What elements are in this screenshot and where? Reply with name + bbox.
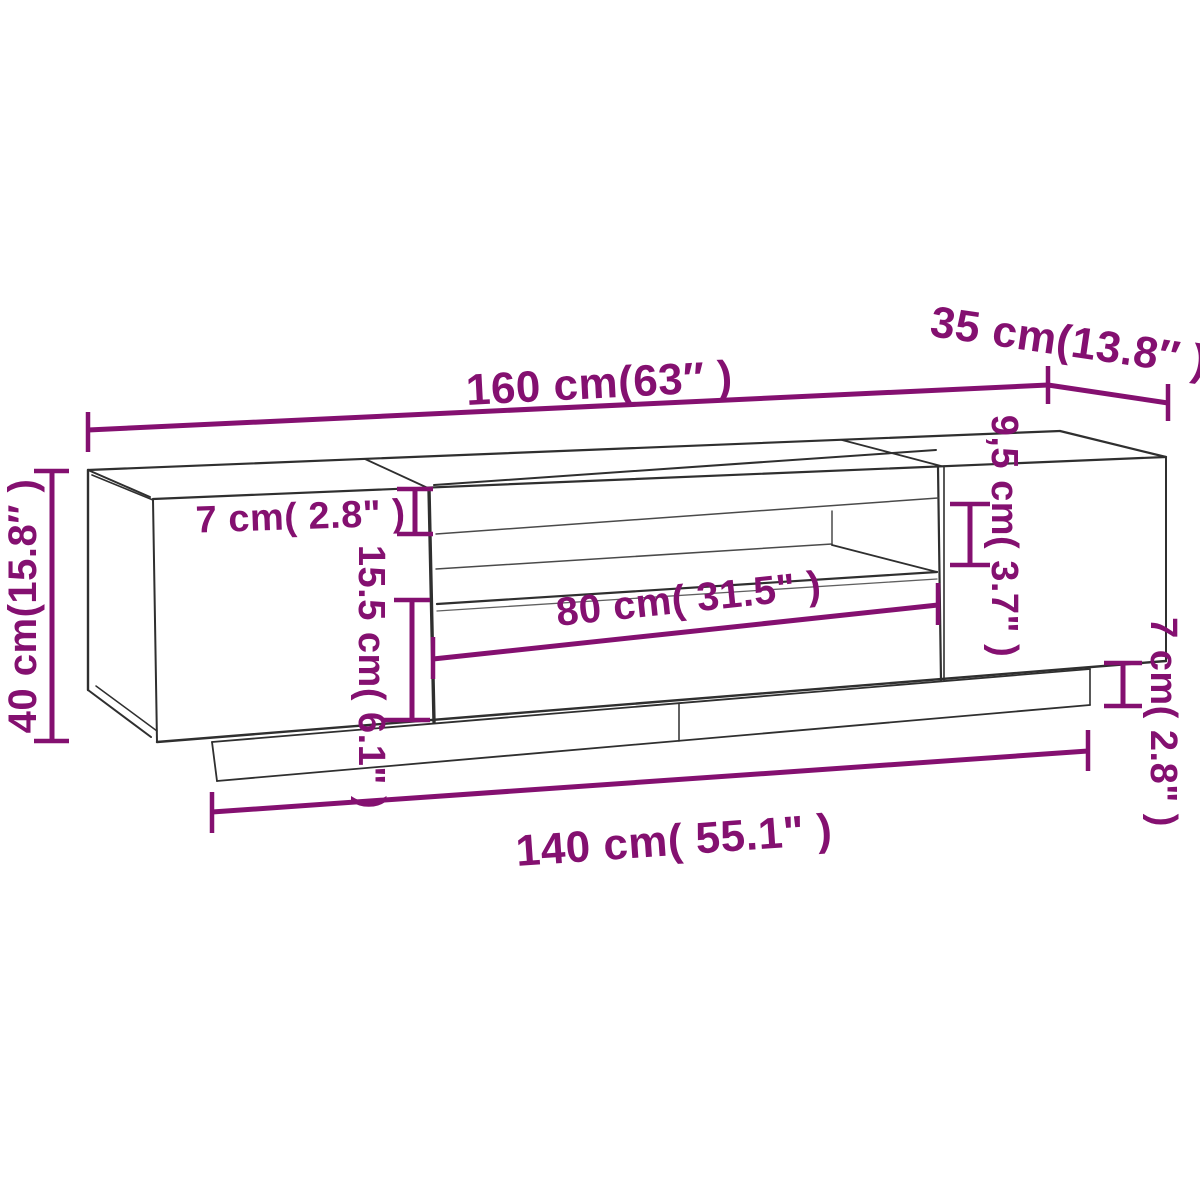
drawer-front-height-label: 15.5 cm( 6.1" ) [350, 545, 392, 809]
compartment-back-wall-base [436, 544, 832, 569]
divider-left [429, 489, 434, 722]
cabinet-bottom-edge [157, 661, 1166, 742]
divider-right-a [938, 467, 941, 681]
compartment-ceiling-edge [436, 498, 938, 534]
overall-depth-label: 35 cm(13.8″ ) [927, 297, 1200, 386]
base-width-label: 140 cm( 55.1" ) [514, 805, 834, 876]
top-left-depth-edge [88, 470, 150, 497]
left-bottom-bevel-outer [88, 690, 151, 737]
left-door-front-edge [153, 500, 157, 742]
overall-height-label: 40 cm(15.8″ ) [1, 479, 45, 734]
open-shelf-height-label: 9,5 cm( 3.7" ) [983, 415, 1025, 658]
diagram-svg: 160 cm(63″ ) 35 cm(13.8″ ) 40 cm(15.8″ )… [0, 0, 1200, 1200]
plinth-left-edge [212, 742, 217, 781]
tv-stand-dimension-diagram: 160 cm(63″ ) 35 cm(13.8″ ) 40 cm(15.8″ )… [0, 0, 1200, 1200]
plinth-bottom-edge [217, 705, 1090, 781]
plinth-top-edge [212, 669, 1090, 742]
dim-line-base-width [212, 751, 1088, 812]
top-back-edge [88, 431, 1060, 470]
plinth-height-label: 7 cm( 2.8" ) [1142, 617, 1184, 827]
open-shelf-width-label: 80 cm( 31.5" ) [554, 563, 823, 635]
top-panel-height-label: 7 cm( 2.8" ) [195, 492, 406, 541]
dim-line-overall-depth [1048, 385, 1168, 403]
top-right-depth-edge [1060, 431, 1166, 457]
overall-width-label: 160 cm(63″ ) [465, 352, 734, 415]
middle-top-edge [434, 450, 936, 485]
top-seam-left [365, 459, 430, 489]
top-panel-thickness-edge [92, 475, 153, 500]
compartment-floor-right-edge [832, 545, 937, 572]
left-bottom-bevel-inner [96, 686, 157, 731]
